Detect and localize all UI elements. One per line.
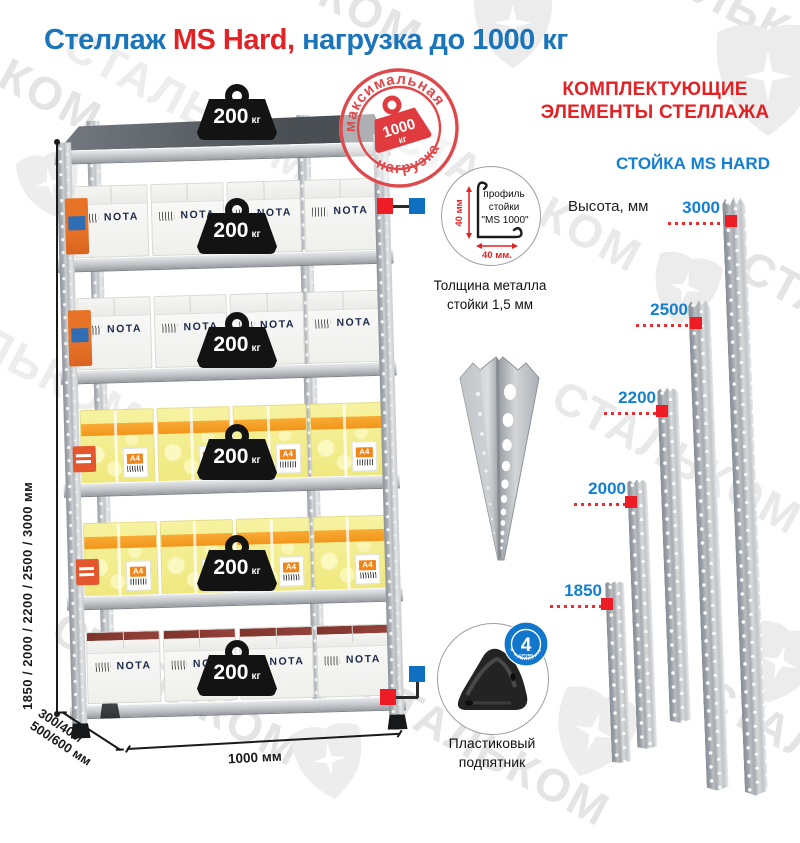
post-height-label: 3000 — [670, 198, 720, 218]
post-height-label: 2500 — [638, 300, 688, 320]
profile-dim-vertical: 40 мм — [454, 199, 465, 226]
rack-foot — [387, 714, 407, 730]
marker-blue-foot — [409, 666, 425, 682]
barcode-icon — [315, 319, 330, 328]
box-brand-label: NOTA — [104, 211, 139, 224]
side-paper-label — [73, 446, 97, 473]
barcode-icon — [159, 211, 174, 220]
corner-post-photo — [452, 352, 547, 567]
box-brand-label: NOTA — [336, 316, 371, 329]
barcode-icon — [360, 572, 376, 578]
post-height-label: 2000 — [576, 479, 626, 499]
post-marker — [690, 317, 702, 329]
paper-box: NOTA — [315, 624, 390, 698]
barcode-icon — [127, 465, 143, 471]
post-height-label: 2200 — [606, 388, 656, 408]
barcode-icon — [130, 578, 146, 584]
barcode-icon — [283, 574, 299, 580]
post-marker — [656, 405, 668, 417]
dotted-leader — [550, 605, 601, 608]
page-title: Стеллаж MS Hard, нагрузка до 1000 кг — [44, 24, 568, 57]
a4-label: A4 — [355, 554, 381, 585]
paper-box: NOTA — [306, 290, 381, 364]
a4-label: A4 — [278, 556, 304, 587]
post-marker — [625, 496, 637, 508]
load-weight: 200кг — [197, 312, 277, 368]
a4-label: A4 — [275, 443, 301, 474]
marker-blue-profile — [409, 198, 425, 214]
dotted-leader — [604, 412, 656, 415]
marker-connector — [396, 696, 418, 699]
quantity-badge: 4 штуки в комплекте — [503, 621, 549, 667]
load-weight: 200кг — [197, 640, 277, 696]
plastic-foot-label: Пластиковый подпятник — [407, 734, 577, 772]
marker-red-foot — [380, 689, 396, 705]
dotted-leader — [636, 324, 688, 327]
barcode-icon — [172, 660, 187, 669]
box-brand-label: NOTA — [107, 322, 142, 335]
barcode-icon — [95, 662, 110, 671]
box-brand-label: NOTA — [346, 653, 381, 666]
components-header: КОМПЛЕКТУЮЩИЕ ЭЛЕМЕНТЫ СТЕЛЛАЖА — [535, 78, 775, 124]
height-units-label: Высота, мм — [568, 198, 648, 215]
a4-label: A4 — [122, 447, 148, 478]
post-2500 — [688, 299, 729, 791]
side-paper-pack — [65, 198, 90, 255]
profile-label: "MS 1000" — [481, 215, 529, 226]
profile-label: профиль — [483, 188, 524, 200]
paper-pack-yellow: A4 — [309, 402, 385, 479]
a4-label: A4 — [352, 441, 378, 472]
load-weight: 200кг — [197, 198, 277, 254]
rack-foot — [100, 703, 120, 719]
post-marker — [725, 215, 737, 227]
barcode-icon — [357, 459, 373, 465]
dotted-leader — [668, 222, 723, 225]
load-weight: 200кг — [197, 84, 277, 140]
barcode-icon — [312, 207, 327, 216]
dotted-leader — [574, 503, 625, 506]
load-weight: 200кг — [197, 535, 277, 591]
barcode-icon — [162, 323, 177, 332]
profile-label: стойки — [489, 202, 520, 213]
title-part-blue: Стеллаж — [44, 24, 173, 56]
barcode-icon — [325, 656, 340, 665]
load-weight: 200кг — [197, 424, 277, 480]
side-paper-pack — [68, 310, 93, 367]
width-dimension-label: 1000 мм — [228, 749, 282, 767]
barcode-icon — [280, 461, 296, 467]
height-dimension-line — [56, 142, 58, 714]
paper-box: NOTA — [86, 630, 161, 704]
paper-pack-yellow: A4 — [312, 515, 388, 592]
side-paper-label — [76, 559, 100, 586]
title-part-red: MS Hard, — [173, 24, 295, 56]
profile-diagram-circle: 40 мм 40 мм. профиль стойки "MS 1000" — [441, 166, 541, 266]
a4-label: A4 — [125, 560, 151, 591]
profile-dim-horizontal: 40 мм. — [482, 250, 512, 261]
post-section-title: СТОЙКА MS HARD — [612, 154, 774, 174]
marker-connector — [393, 205, 409, 208]
box-brand-label: NOTA — [116, 659, 151, 672]
profile-diagram: 40 мм 40 мм. профиль стойки "MS 1000" — [442, 167, 540, 265]
height-dimension-label: 1850 / 2000 / 2200 / 2500 / 3000 мм — [20, 150, 35, 710]
thickness-note: Толщина металла стойки 1,5 мм — [400, 276, 580, 314]
post-marker — [601, 598, 613, 610]
post-height-label: 1850 — [552, 581, 602, 601]
